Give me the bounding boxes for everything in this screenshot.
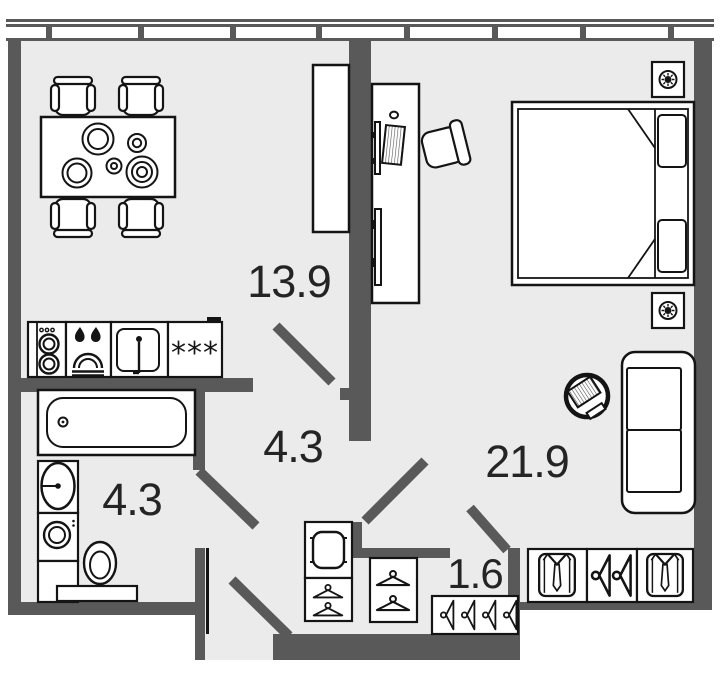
kitchen-tall-cabinet	[313, 65, 349, 232]
shirt-icon	[539, 554, 575, 596]
monitor-icon	[375, 122, 380, 174]
wall-right	[694, 38, 712, 610]
shirt-icon	[647, 554, 683, 596]
window-band	[6, 19, 714, 41]
tv-bracket-icon	[372, 220, 375, 229]
keyboard-icon	[382, 125, 405, 165]
window-mullion	[316, 27, 322, 38]
wash-basin	[38, 461, 78, 513]
work-desk	[372, 84, 420, 303]
dining-chair	[119, 199, 163, 237]
floor-plan-drawing: ***	[0, 0, 720, 686]
pillow	[658, 220, 686, 272]
handle-icon	[207, 317, 221, 323]
window-mullion	[138, 27, 144, 38]
side-table	[566, 375, 608, 419]
dining-chair	[51, 199, 95, 237]
window-mullion	[492, 27, 498, 38]
room-area-label-closet: 1.6	[447, 550, 502, 598]
glazing-line	[6, 24, 714, 27]
wall-partition	[349, 38, 371, 441]
appliance-column	[28, 322, 66, 377]
nightstand	[652, 293, 684, 328]
nightstand	[652, 62, 684, 97]
wall-bottom-left	[8, 602, 205, 615]
monitor-icon	[372, 132, 375, 138]
entrance-door-frame-line	[206, 548, 209, 634]
tv-bracket-icon	[372, 258, 375, 267]
window-mullion	[230, 27, 236, 38]
closet-hanger-rail	[432, 596, 518, 634]
kitchen-sink	[111, 322, 168, 377]
drain-icon	[62, 421, 65, 424]
washing-machine	[38, 513, 78, 561]
wall-bottom-hall	[273, 634, 520, 660]
room-area-label-living: 21.9	[485, 436, 569, 488]
room-area-label-hallway: 4.3	[263, 421, 323, 473]
bathtub	[38, 390, 195, 455]
hallway-wardrobe	[305, 578, 352, 621]
window-mullion	[580, 27, 586, 38]
window-mullion	[404, 27, 410, 38]
room-area-label-kitchen: 13.9	[247, 256, 331, 308]
room-area-label-bathroom: 4.3	[102, 474, 162, 526]
dining-table	[41, 117, 175, 197]
table-lamp-icon	[660, 71, 677, 88]
wall-left	[8, 38, 21, 615]
fridge-freezer: ***	[168, 317, 222, 377]
tv-panel	[375, 209, 381, 285]
pouf-cabinet	[305, 522, 352, 578]
faucet-icon	[55, 483, 61, 489]
facade-line	[6, 19, 714, 22]
window-mullion	[46, 27, 52, 38]
wardrobe-sections	[528, 549, 693, 602]
floor-plan: ***	[0, 0, 720, 686]
dining-chair	[51, 77, 95, 115]
pillow	[658, 115, 686, 167]
wall-bottom-right	[520, 602, 712, 610]
faucet-icon	[136, 336, 142, 342]
double-bed	[512, 102, 694, 285]
sofa	[622, 352, 695, 513]
wall-stub	[340, 388, 371, 400]
dining-chair	[119, 77, 163, 115]
window-mullion	[668, 27, 674, 38]
freezer-stars-icon: ***	[171, 336, 219, 371]
wall-closet-left-h	[362, 548, 450, 558]
monitor-icon	[372, 158, 375, 164]
cooktop	[66, 322, 111, 377]
table-lamp-icon	[660, 302, 677, 319]
hallway-wardrobe	[370, 558, 417, 622]
